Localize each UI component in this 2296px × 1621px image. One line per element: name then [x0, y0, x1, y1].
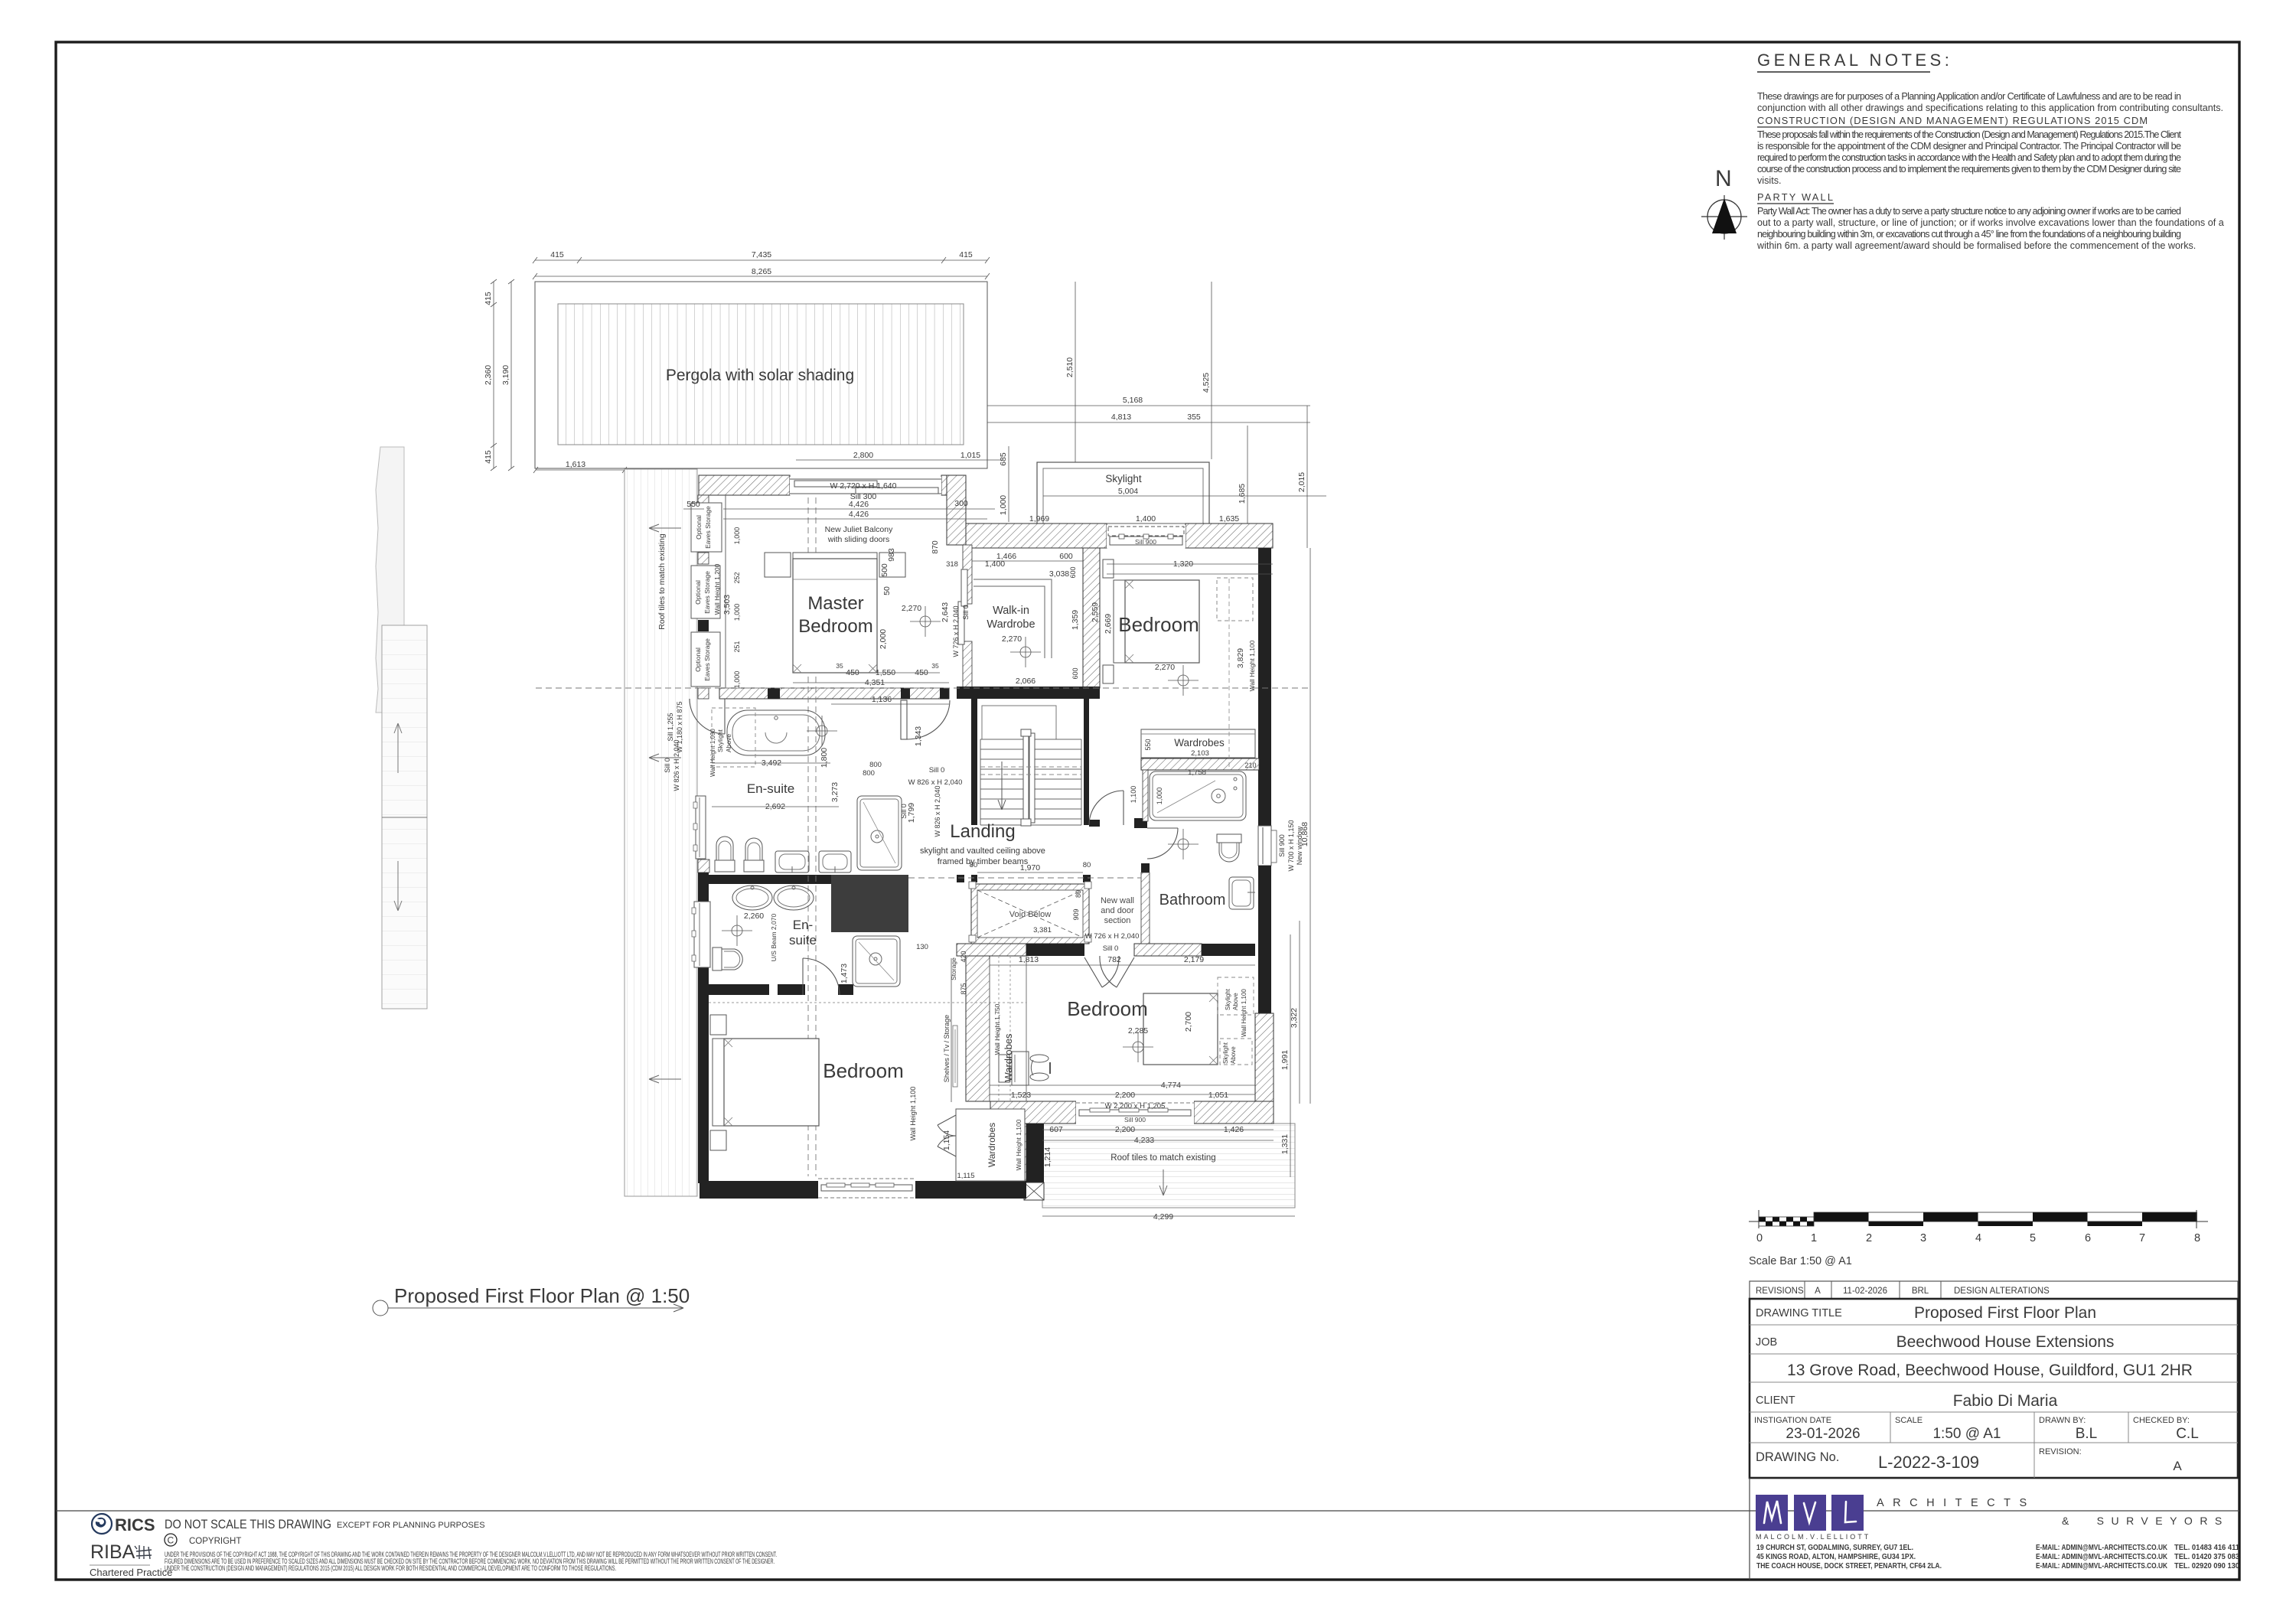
svg-text:2,015: 2,015 [1297, 472, 1306, 492]
svg-text:THE COACH HOUSE, DOCK STREET,: THE COACH HOUSE, DOCK STREET, PENARTH, C… [1756, 1562, 1942, 1570]
svg-text:New window: New window [1296, 826, 1303, 865]
svg-text:Storage: Storage [950, 957, 957, 980]
svg-text:45 KINGS ROAD, ALTON, HAMPSHIR: 45 KINGS ROAD, ALTON, HAMPSHIRE, GU34 1P… [1756, 1553, 1916, 1561]
svg-text:8: 8 [2194, 1232, 2200, 1244]
svg-text:U/S Beam 2,070: U/S Beam 2,070 [770, 914, 778, 962]
svg-text:800: 800 [869, 761, 882, 769]
svg-text:1,813: 1,813 [1019, 955, 1039, 964]
svg-text:130: 130 [916, 943, 928, 951]
svg-text:550: 550 [1144, 739, 1152, 750]
svg-text:Sill 0: Sill 0 [664, 758, 671, 773]
svg-text:B.L: B.L [2076, 1426, 2098, 1442]
svg-text:1,635: 1,635 [1219, 514, 1239, 523]
svg-text:1,473: 1,473 [840, 964, 849, 983]
svg-text:2,270: 2,270 [1002, 634, 1022, 644]
svg-text:N: N [1715, 166, 1732, 191]
svg-text:Wall Height 1,750: Wall Height 1,750 [993, 1003, 1001, 1055]
svg-text:CONSTRUCTION (DESIGN AND MANAG: CONSTRUCTION (DESIGN AND MANAGEMENT) REG… [1757, 115, 2148, 126]
svg-text:Optional: Optional [695, 515, 703, 540]
svg-text:13 Grove Road, Beechwood House: 13 Grove Road, Beechwood House, Guildfor… [1787, 1362, 2193, 1379]
svg-text:Master: Master [807, 593, 863, 614]
svg-text:1,015: 1,015 [960, 451, 980, 460]
svg-text:New wall: New wall [1101, 896, 1134, 905]
svg-text:Sill 900: Sill 900 [1135, 538, 1156, 546]
svg-text:REVISION:: REVISION: [2039, 1447, 2082, 1456]
svg-text:DO NOT SCALE THIS DRAWING: DO NOT SCALE THIS DRAWING [165, 1517, 331, 1531]
svg-text:Sill 900: Sill 900 [1278, 834, 1286, 857]
svg-text:2,000: 2,000 [879, 629, 888, 649]
svg-text:500: 500 [880, 563, 889, 577]
svg-text:En-: En- [793, 918, 813, 932]
svg-text:These proposals fall within th: These proposals fall within the requirem… [1757, 129, 2182, 140]
svg-text:E-MAIL: ADMIN@MVL-ARCHITECTS.C: E-MAIL: ADMIN@MVL-ARCHITECTS.CO.UK [2036, 1544, 2167, 1552]
svg-text:252: 252 [733, 572, 741, 583]
svg-text:875: 875 [960, 983, 967, 994]
svg-text:Chartered Practice: Chartered Practice [90, 1567, 172, 1578]
svg-text:W 826 x H 2,040: W 826 x H 2,040 [934, 785, 941, 837]
svg-text:Skylight: Skylight [1222, 1042, 1229, 1064]
svg-text:1,400: 1,400 [1136, 514, 1156, 523]
svg-text:983: 983 [887, 548, 896, 562]
svg-text:DRAWN BY:: DRAWN BY: [2039, 1416, 2086, 1425]
svg-text:3,503: 3,503 [722, 595, 732, 615]
svg-text:A: A [1815, 1287, 1821, 1296]
svg-text:SCALE: SCALE [1895, 1416, 1923, 1425]
svg-text:Pergola with solar shading: Pergola with solar shading [666, 367, 854, 384]
svg-text:1,000: 1,000 [1156, 788, 1163, 805]
svg-text:1,400: 1,400 [985, 559, 1005, 569]
svg-text:35: 35 [836, 662, 843, 670]
svg-text:Above: Above [725, 734, 732, 752]
svg-text:2,066: 2,066 [1016, 677, 1035, 686]
svg-text:4,426: 4,426 [849, 500, 869, 509]
svg-text:3: 3 [1920, 1232, 1926, 1244]
svg-text:Optional: Optional [694, 647, 702, 672]
svg-text:2,270: 2,270 [902, 604, 921, 613]
svg-text:4: 4 [1975, 1232, 1981, 1244]
svg-text:Wall Height 1,100: Wall Height 1,100 [1241, 989, 1247, 1037]
svg-text:1,115: 1,115 [957, 1172, 974, 1180]
svg-text:Shelves / Tv / Storage: Shelves / Tv / Storage [943, 1015, 951, 1082]
svg-text:RIBA: RIBA [90, 1541, 135, 1563]
svg-text:E-MAIL: ADMIN@MVL-ARCHITECTS.C: E-MAIL: ADMIN@MVL-ARCHITECTS.CO.UK [2036, 1553, 2167, 1561]
svg-text:2,200: 2,200 [1115, 1091, 1135, 1100]
svg-text:required to perform the constr: required to perform the construction tas… [1757, 152, 2181, 163]
svg-text:Landing: Landing [950, 821, 1015, 842]
svg-text:3,322: 3,322 [1290, 1008, 1299, 1028]
svg-text:600: 600 [1059, 552, 1073, 561]
svg-text:A: A [2173, 1459, 2182, 1473]
svg-text:Sill 1,255: Sill 1,255 [667, 713, 674, 741]
svg-text:W 826 x H 2,040: W 826 x H 2,040 [673, 739, 680, 791]
svg-text:1,000: 1,000 [733, 604, 741, 621]
svg-text:800: 800 [863, 769, 875, 778]
svg-text:2,800: 2,800 [853, 451, 873, 460]
svg-text:Sill 0: Sill 0 [962, 605, 970, 620]
svg-text:2,270: 2,270 [1155, 663, 1175, 672]
svg-text:415: 415 [959, 250, 973, 259]
svg-text:En-suite: En-suite [747, 781, 794, 796]
svg-text:skylight and vaulted ceiling a: skylight and vaulted ceiling above [920, 846, 1045, 856]
svg-text:2,559: 2,559 [1091, 602, 1100, 622]
svg-text:and door: and door [1101, 906, 1134, 915]
svg-text:0: 0 [1756, 1232, 1763, 1244]
svg-text:framed by timber beams: framed by timber beams [938, 857, 1029, 866]
svg-text:visits.: visits. [1757, 175, 1781, 186]
svg-text:1,051: 1,051 [1208, 1091, 1228, 1100]
svg-text:3,829: 3,829 [1236, 648, 1245, 668]
svg-text:35: 35 [931, 662, 939, 670]
svg-text:600: 600 [1071, 667, 1079, 679]
svg-text:415: 415 [550, 250, 564, 259]
svg-text:2,643: 2,643 [941, 602, 950, 622]
svg-text:Wall Height 1,090: Wall Height 1,090 [709, 729, 716, 777]
svg-text:within 6m. a party wall agreem: within 6m. a party wall agreement/award … [1756, 240, 2196, 251]
svg-text:Optional: Optional [694, 580, 702, 605]
svg-text:685: 685 [999, 452, 1008, 466]
svg-text:3,038: 3,038 [1049, 569, 1069, 579]
svg-text:Sill 0: Sill 0 [929, 766, 945, 775]
svg-text:section: section [1104, 916, 1131, 925]
svg-text:3,273: 3,273 [830, 782, 840, 802]
svg-text:Skylight: Skylight [716, 729, 724, 752]
svg-text:COPYRIGHT: COPYRIGHT [189, 1537, 241, 1546]
svg-text:Roof tiles to match existing: Roof tiles to match existing [1110, 1153, 1215, 1163]
svg-text:TEL. 01483 416 411: TEL. 01483 416 411 [2174, 1544, 2240, 1552]
svg-text:Scale Bar 1:50 @ A1: Scale Bar 1:50 @ A1 [1749, 1255, 1852, 1267]
svg-text:318: 318 [946, 560, 958, 569]
svg-text:EXCEPT FOR PLANNING PURPOSES: EXCEPT FOR PLANNING PURPOSES [337, 1521, 485, 1530]
svg-text:415: 415 [484, 292, 493, 305]
svg-text:1,154: 1,154 [942, 1130, 951, 1150]
svg-text:1,000: 1,000 [733, 671, 741, 689]
svg-text:CLIENT: CLIENT [1756, 1394, 1795, 1407]
svg-text:Eaves Storage: Eaves Storage [703, 571, 711, 614]
svg-text:80: 80 [1083, 861, 1091, 869]
svg-text:1,214: 1,214 [1043, 1147, 1052, 1167]
svg-text:4,299: 4,299 [1153, 1212, 1173, 1221]
svg-text:1,613: 1,613 [566, 460, 585, 469]
svg-text:Sill 0: Sill 0 [1103, 944, 1119, 953]
svg-text:DRAWING No.: DRAWING No. [1756, 1450, 1839, 1464]
svg-text:Eaves Storage: Eaves Storage [703, 638, 711, 681]
svg-text:870: 870 [931, 540, 940, 554]
svg-text:C.L: C.L [2176, 1426, 2199, 1442]
svg-text:is responsible for the appoint: is responsible for the appointment of th… [1757, 141, 2181, 152]
svg-text:UNDER THE CONSTRUCTION (DESIGN: UNDER THE CONSTRUCTION (DESIGN AND MANAG… [165, 1564, 616, 1572]
svg-text:2,700: 2,700 [1184, 1012, 1193, 1032]
svg-text:Eaves Storage: Eaves Storage [704, 506, 712, 549]
svg-text:Sill 900: Sill 900 [1124, 1116, 1146, 1124]
svg-text:80: 80 [970, 861, 978, 869]
svg-text:Skylight: Skylight [1225, 988, 1231, 1010]
svg-text:909: 909 [1072, 908, 1080, 920]
svg-text:Wardrobes: Wardrobes [987, 1123, 997, 1167]
svg-text:suite: suite [789, 933, 817, 947]
svg-text:out to a party wall, structure: out to a party wall, structure, or line … [1757, 217, 2224, 228]
svg-text:Above: Above [1230, 1046, 1237, 1064]
svg-text:1:50 @ A1: 1:50 @ A1 [1932, 1426, 2001, 1442]
svg-text:1,800: 1,800 [820, 748, 829, 768]
svg-text:DESIGN ALTERATIONS: DESIGN ALTERATIONS [1954, 1287, 2050, 1296]
svg-text:7: 7 [2139, 1232, 2145, 1244]
svg-text:Fabio Di Maria: Fabio Di Maria [1953, 1392, 2058, 1410]
svg-text:course of the construction pro: course of the construction process and t… [1757, 164, 2181, 174]
svg-text:ARCHITECTS: ARCHITECTS [1877, 1497, 2036, 1509]
svg-text:1,000: 1,000 [999, 495, 1008, 515]
svg-text:E-MAIL: ADMIN@MVL-ARCHITECTS.C: E-MAIL: ADMIN@MVL-ARCHITECTS.CO.UK [2036, 1562, 2167, 1570]
svg-text:Roof tiles to match existing: Roof tiles to match existing [657, 533, 667, 630]
svg-text:4,813: 4,813 [1111, 413, 1131, 422]
svg-text:Party Wall Act: The owner has: Party Wall Act: The owner has a duty to … [1757, 206, 2181, 217]
svg-text:TEL. 01420 375 083: TEL. 01420 375 083 [2174, 1553, 2240, 1561]
svg-text:415: 415 [484, 450, 493, 464]
svg-text:550: 550 [687, 500, 700, 509]
svg-text:neighbouring building within 3: neighbouring building within 3m, or exca… [1757, 229, 2181, 240]
svg-text:420: 420 [960, 951, 967, 962]
svg-text:2,360: 2,360 [484, 365, 493, 385]
svg-text:W 2,720 x H 1,640: W 2,720 x H 1,640 [830, 481, 897, 491]
svg-text:4,426: 4,426 [849, 510, 869, 519]
svg-text:Beechwood House Extensions: Beechwood House Extensions [1896, 1333, 2115, 1351]
svg-text:& SURVEYORS: & SURVEYORS [2062, 1515, 2229, 1527]
svg-text:DRAWING TITLE: DRAWING TITLE [1756, 1307, 1842, 1319]
svg-text:1,685: 1,685 [1238, 484, 1247, 504]
svg-text:300: 300 [954, 499, 968, 508]
svg-text:Wall Height 1,200: Wall Height 1,200 [713, 563, 721, 615]
svg-text:1,100: 1,100 [1130, 786, 1137, 804]
svg-text:1,359: 1,359 [1071, 610, 1080, 630]
svg-text:5,004: 5,004 [1118, 487, 1138, 496]
svg-text:1,136: 1,136 [872, 695, 892, 704]
svg-text:Bedroom: Bedroom [798, 616, 872, 637]
svg-text:23-01-2026: 23-01-2026 [1786, 1426, 1860, 1442]
svg-text:W 2,200 x H 1,205: W 2,200 x H 1,205 [1105, 1102, 1166, 1111]
svg-text:Wall Height 1,100: Wall Height 1,100 [909, 1087, 917, 1141]
svg-text:2,103: 2,103 [1191, 749, 1209, 758]
svg-text:CHECKED BY:: CHECKED BY: [2133, 1416, 2190, 1425]
svg-text:Wall Height 1,100: Wall Height 1,100 [1015, 1119, 1022, 1170]
svg-text:TEL. 02920 090 130: TEL. 02920 090 130 [2174, 1562, 2240, 1570]
svg-text:1: 1 [1811, 1232, 1817, 1244]
svg-text:RICS: RICS [115, 1515, 155, 1535]
svg-text:Bedroom: Bedroom [823, 1059, 904, 1082]
svg-text:Proposed First Floor Plan: Proposed First Floor Plan [1914, 1304, 2096, 1322]
svg-text:Void Below: Void Below [1009, 910, 1051, 919]
svg-text:355: 355 [1187, 413, 1201, 422]
svg-text:Wardrobes: Wardrobes [1174, 737, 1225, 749]
svg-text:Above: Above [1232, 993, 1239, 1010]
svg-text:5,168: 5,168 [1123, 396, 1143, 405]
svg-text:W 726 x H 2,040: W 726 x H 2,040 [1085, 932, 1140, 941]
svg-text:8,265: 8,265 [752, 267, 771, 276]
svg-text:1,331: 1,331 [1280, 1134, 1290, 1154]
svg-text:1,523: 1,523 [1011, 1091, 1031, 1100]
svg-text:conjunction with all other dra: conjunction with all other drawings and … [1757, 103, 2223, 113]
svg-text:W 726 x H 2,040: W 726 x H 2,040 [952, 605, 960, 657]
svg-text:1,799: 1,799 [907, 803, 916, 823]
svg-text:1,000: 1,000 [733, 527, 741, 545]
svg-text:Sill 0: Sill 0 [900, 804, 908, 819]
svg-text:PARTY WALL: PARTY WALL [1757, 191, 1835, 203]
svg-text:4,525: 4,525 [1202, 373, 1211, 393]
svg-text:INSTIGATION DATE: INSTIGATION DATE [1754, 1416, 1831, 1425]
svg-text:11-02-2026: 11-02-2026 [1843, 1287, 1887, 1296]
svg-text:80: 80 [1075, 890, 1082, 898]
svg-text:Bathroom: Bathroom [1159, 892, 1226, 908]
svg-text:1,758: 1,758 [1188, 768, 1206, 777]
svg-text:New Juliet Balcony: New Juliet Balcony [825, 525, 893, 534]
svg-text:2,179: 2,179 [1184, 955, 1204, 964]
svg-text:2,260: 2,260 [744, 912, 764, 921]
svg-text:19 CHURCH ST, GODALMING, SURRE: 19 CHURCH ST, GODALMING, SURREY, GU7 1EL… [1756, 1544, 1913, 1552]
svg-text:210: 210 [1244, 762, 1256, 769]
svg-text:3,190: 3,190 [501, 365, 510, 385]
svg-text:W 826 x H 2,040: W 826 x H 2,040 [908, 778, 963, 787]
svg-text:Bedroom: Bedroom [1118, 613, 1199, 636]
svg-text:L-2022-3-109: L-2022-3-109 [1878, 1453, 1979, 1472]
svg-text:JOB: JOB [1756, 1336, 1777, 1349]
svg-text:1,969: 1,969 [1029, 514, 1049, 523]
svg-text:50: 50 [882, 586, 892, 595]
svg-text:782: 782 [1107, 955, 1121, 964]
svg-text:600: 600 [1069, 566, 1077, 578]
svg-text:Skylight: Skylight [1105, 473, 1142, 484]
svg-text:251: 251 [733, 641, 741, 652]
svg-text:2,669: 2,669 [1104, 614, 1113, 634]
svg-text:1,970: 1,970 [1020, 863, 1040, 872]
svg-text:W 700 x H 1,150: W 700 x H 1,150 [1287, 820, 1295, 871]
svg-text:2,510: 2,510 [1065, 357, 1075, 377]
svg-text:GENERAL NOTES:: GENERAL NOTES: [1757, 51, 1952, 70]
svg-text:Proposed First Floor Plan @ 1:: Proposed First Floor Plan @ 1:50 [394, 1284, 690, 1307]
svg-text:1,343: 1,343 [914, 726, 923, 746]
svg-text:BRL: BRL [1912, 1287, 1929, 1296]
svg-text:C: C [168, 1535, 174, 1546]
svg-text:Wardrobe: Wardrobe [987, 618, 1035, 631]
svg-text:Wardrobes: Wardrobes [1003, 1033, 1014, 1082]
svg-text:Walk-in: Walk-in [993, 605, 1029, 617]
svg-text:3,381: 3,381 [1033, 926, 1052, 934]
svg-text:MALCOLM.V.LELLIOTT: MALCOLM.V.LELLIOTT [1756, 1533, 1870, 1541]
svg-text:REVISIONS: REVISIONS [1756, 1287, 1804, 1296]
svg-text:These drawings are for purpose: These drawings are for purposes of a Pla… [1757, 91, 2181, 102]
svg-text:Wall Height 1,100: Wall Height 1,100 [1248, 640, 1256, 691]
svg-text:5: 5 [2030, 1232, 2036, 1244]
svg-text:6: 6 [2085, 1232, 2091, 1244]
svg-text:with sliding doors: with sliding doors [827, 535, 890, 544]
svg-text:1,991: 1,991 [1280, 1050, 1290, 1070]
svg-text:2: 2 [1866, 1232, 1872, 1244]
svg-text:Bedroom: Bedroom [1067, 997, 1148, 1020]
svg-text:7,435: 7,435 [752, 250, 771, 259]
